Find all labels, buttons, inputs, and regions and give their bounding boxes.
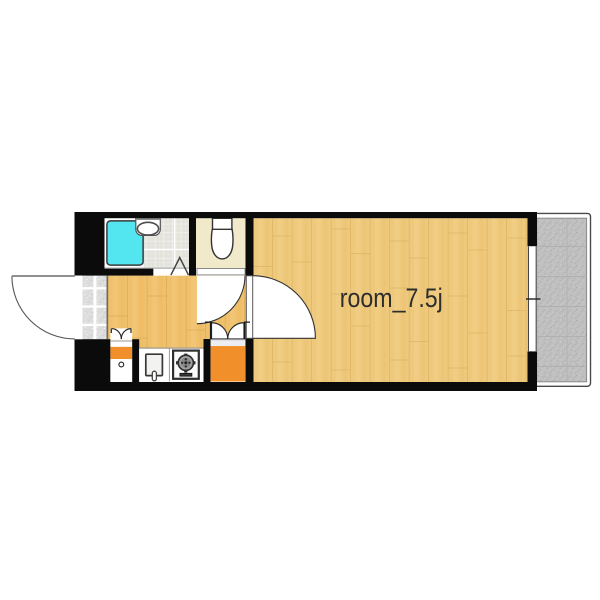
svg-text:room_7.5j: room_7.5j [340,283,443,313]
